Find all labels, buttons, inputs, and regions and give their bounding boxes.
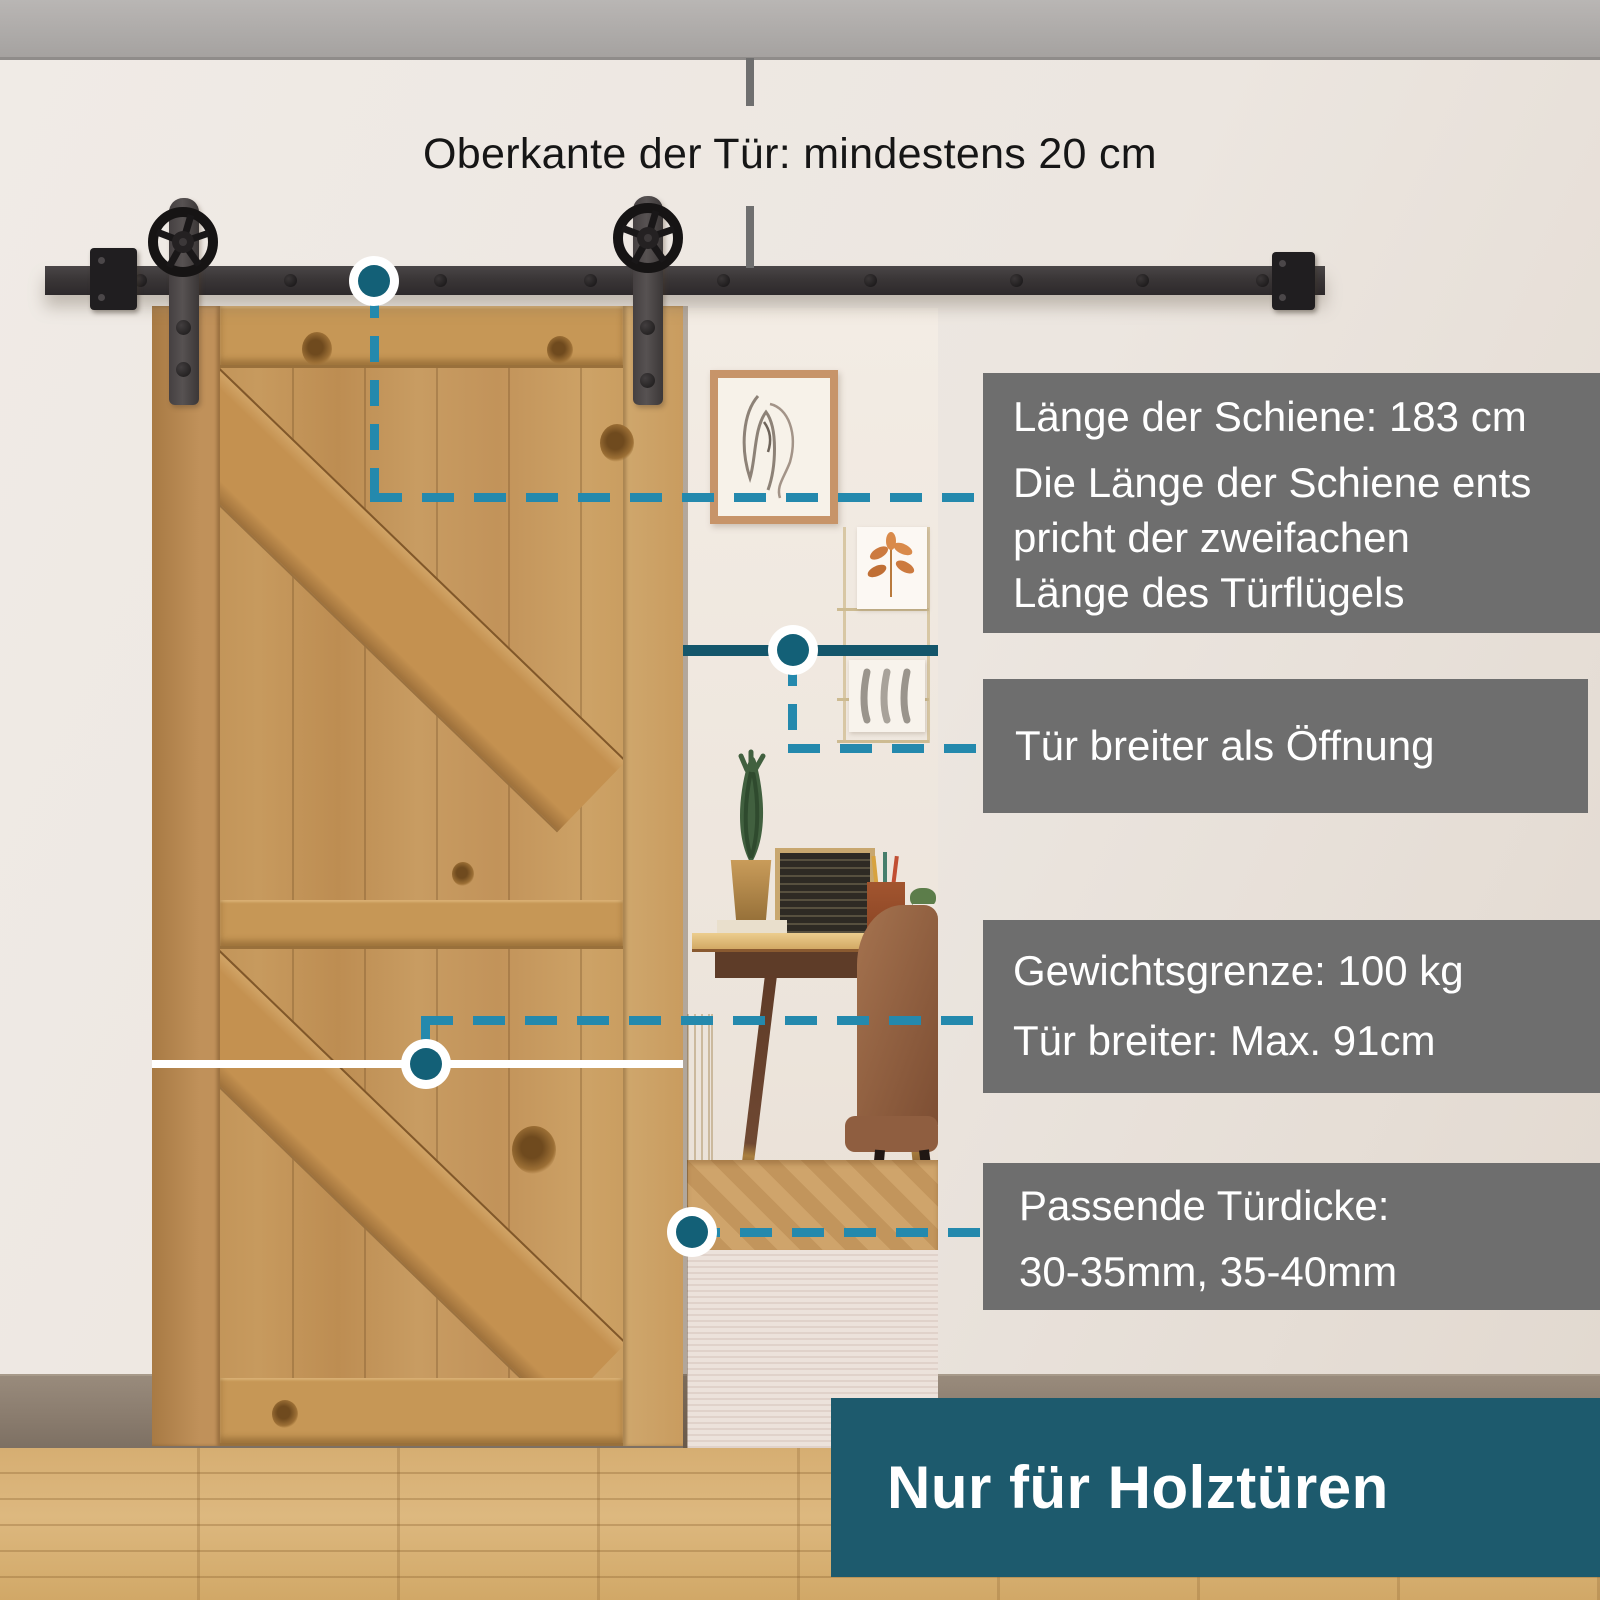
callout-thickness-line: 30-35mm, 35-40mm [1019, 1239, 1590, 1305]
callout-track-length: Länge der Schiene: 183 cm Die Länge der … [983, 373, 1600, 633]
connector-rail-horizontal-dash [370, 493, 983, 502]
end-stop-screw [98, 257, 105, 264]
shelf-string-left [843, 527, 846, 743]
braided-plant [725, 746, 777, 866]
wood-knot [547, 336, 573, 364]
product-infographic: Oberkante der Tür: mindestens 20 cm Läng… [0, 0, 1600, 1600]
sliding-track-rail [45, 266, 1325, 295]
wood-knot [512, 1126, 556, 1174]
shelf-rung [837, 740, 929, 743]
wood-knot [272, 1400, 298, 1428]
door-stile-right [623, 306, 683, 1446]
wood-knot [600, 424, 634, 462]
rail-anchor-dot [358, 265, 390, 297]
callout-thickness-line: Passende Türdicke: [1019, 1173, 1590, 1239]
callout-weight-line: Tür breiter: Max. 91cm [1013, 1006, 1590, 1076]
callout-track-length-line: Die Länge der Schiene ents [1013, 455, 1590, 510]
strap-bolt [640, 373, 655, 388]
wire-basket [687, 1014, 713, 1170]
top-measure-tick-upper [746, 58, 754, 106]
leaf-art-card [857, 527, 927, 609]
door-thickness-anchor-dot [676, 1216, 708, 1248]
connector-opening-horizontal-dash [788, 744, 983, 753]
barn-door [152, 306, 683, 1446]
top-clearance-label: Oberkante der Tür: mindestens 20 cm [290, 130, 1290, 179]
callout-weight-limit: Gewichtsgrenze: 100 kg Tür breiter: Max.… [983, 920, 1600, 1093]
door-batten-middle [220, 900, 623, 949]
opening-anchor-dot [777, 634, 809, 666]
callout-track-length-line: Länge des Türflügels [1013, 565, 1590, 620]
callout-track-length-line: pricht der zweifachen [1013, 510, 1590, 565]
slatted-screen [775, 848, 875, 940]
door-stile-left [152, 306, 220, 1446]
strap-bolt [176, 320, 191, 335]
end-stop-screw [98, 294, 105, 301]
callout-track-length-title: Länge der Schiene: 183 cm [1013, 389, 1590, 445]
rail-bolt [434, 274, 447, 287]
shelf-string-right [927, 527, 930, 743]
ceiling-band [0, 0, 1600, 60]
feather-art-card [849, 660, 925, 732]
callout-weight-line: Gewichtsgrenze: 100 kg [1013, 936, 1590, 1006]
hanger-wheel-right-icon [612, 202, 684, 274]
plank-seam [364, 306, 366, 1446]
strap-bolt [640, 320, 655, 335]
callout-door-thickness: Passende Türdicke: 30-35mm, 35-40mm [983, 1163, 1600, 1310]
rail-bolt [717, 274, 730, 287]
wood-doors-only-banner: Nur für Holztüren [831, 1398, 1600, 1577]
connector-thickness-horizontal-dash [688, 1228, 983, 1237]
connector-width-horizontal-dash [421, 1016, 983, 1025]
connector-opening-vertical-dash [788, 660, 797, 748]
track-end-stop-right [1272, 252, 1315, 310]
door-width-anchor-dot [410, 1048, 442, 1080]
wood-knot [302, 332, 332, 366]
opening-width-line [683, 645, 938, 656]
desk-leg-left [739, 974, 777, 1186]
rail-bolt [1256, 274, 1269, 287]
wood-knot [452, 862, 474, 886]
top-measure-tick-lower [746, 206, 754, 268]
hanger-wheel-left-icon [147, 206, 219, 278]
rail-bolt [284, 274, 297, 287]
pencil [883, 852, 887, 882]
rail-bolt [1136, 274, 1149, 287]
end-stop-screw [1279, 260, 1286, 267]
chair-back [857, 905, 938, 1125]
rail-bolt [864, 274, 877, 287]
plank-seam [580, 306, 582, 1446]
connector-rail-vertical-dash [370, 292, 379, 493]
leaf-art [857, 527, 927, 609]
doorway-room-photo [687, 308, 938, 1448]
door-edge-shadow [683, 306, 688, 1448]
rail-bolt [1010, 274, 1023, 287]
callout-door-wider: Tür breiter als Öffnung [983, 679, 1588, 813]
callout-door-wider-line: Tür breiter als Öffnung [1015, 722, 1434, 770]
feather-art [849, 660, 925, 732]
chair-seat [845, 1116, 938, 1152]
rail-bolt [584, 274, 597, 287]
diagonal-brace-upper [152, 368, 626, 832]
end-stop-screw [1279, 294, 1286, 301]
strap-bolt [176, 362, 191, 377]
track-end-stop-left [90, 248, 137, 310]
wood-doors-only-label: Nur für Holztüren [887, 1453, 1389, 1522]
